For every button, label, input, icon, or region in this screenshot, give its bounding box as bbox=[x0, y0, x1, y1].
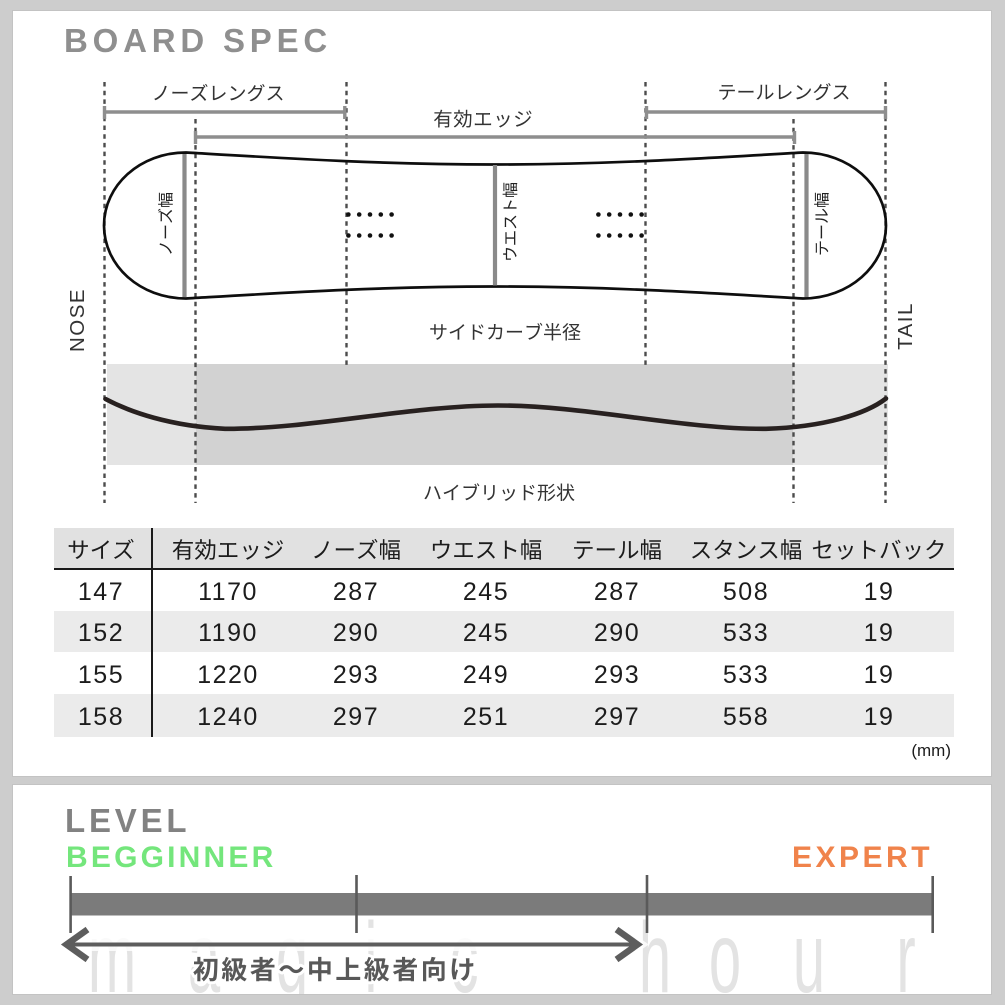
svg-text:NOSE: NOSE bbox=[66, 288, 89, 352]
svg-text:o: o bbox=[709, 903, 741, 994]
svg-text:TAIL: TAIL bbox=[894, 302, 917, 350]
svg-text:h: h bbox=[639, 903, 671, 994]
svg-text:u: u bbox=[793, 903, 825, 994]
svg-text:r: r bbox=[896, 903, 915, 994]
